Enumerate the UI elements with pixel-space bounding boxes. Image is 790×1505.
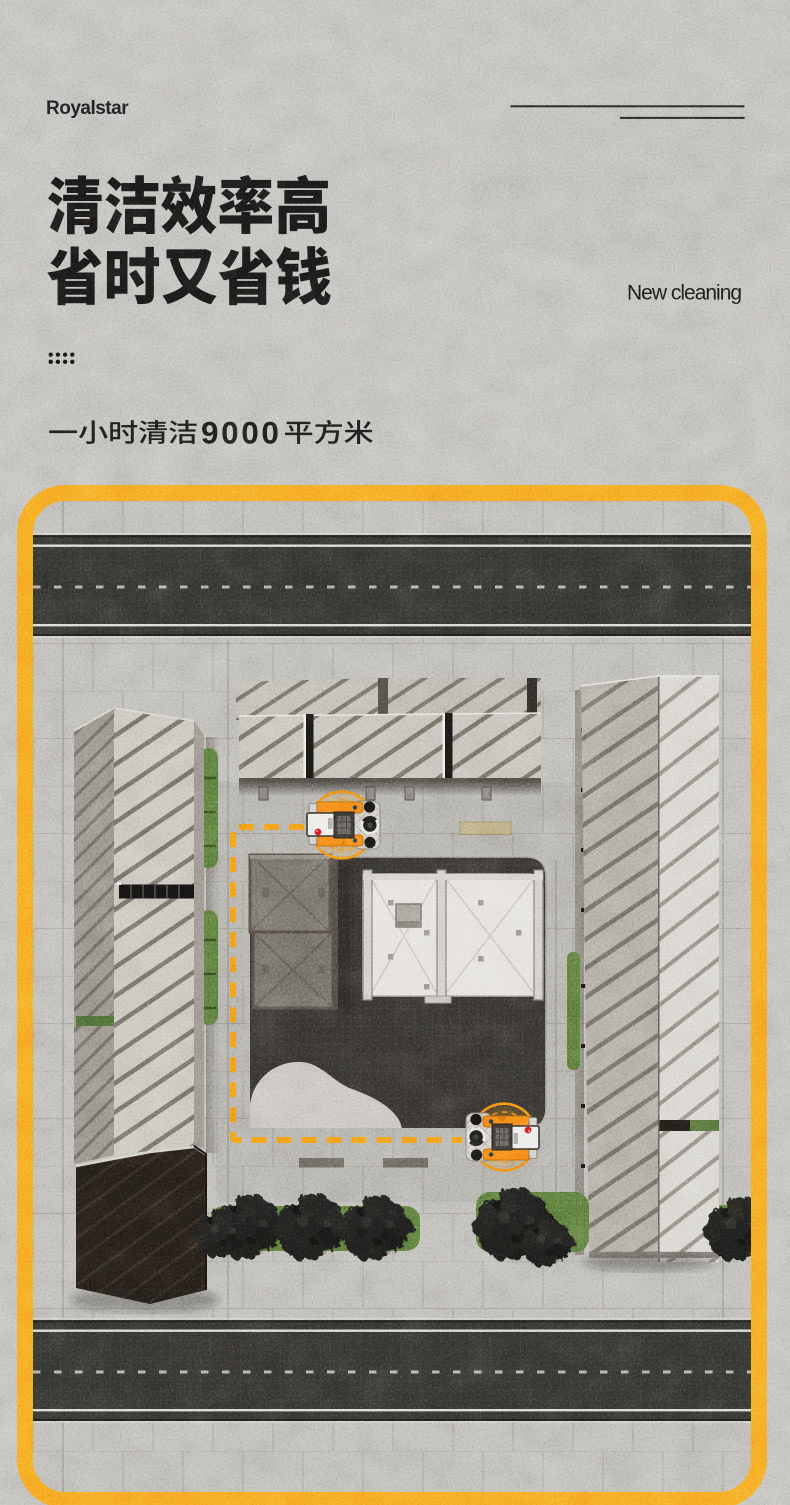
svg-text:Royalstar: Royalstar: [46, 98, 129, 119]
svg-text:New cleaning: New cleaning: [627, 282, 741, 305]
svg-text:9000: 9000: [201, 414, 281, 450]
